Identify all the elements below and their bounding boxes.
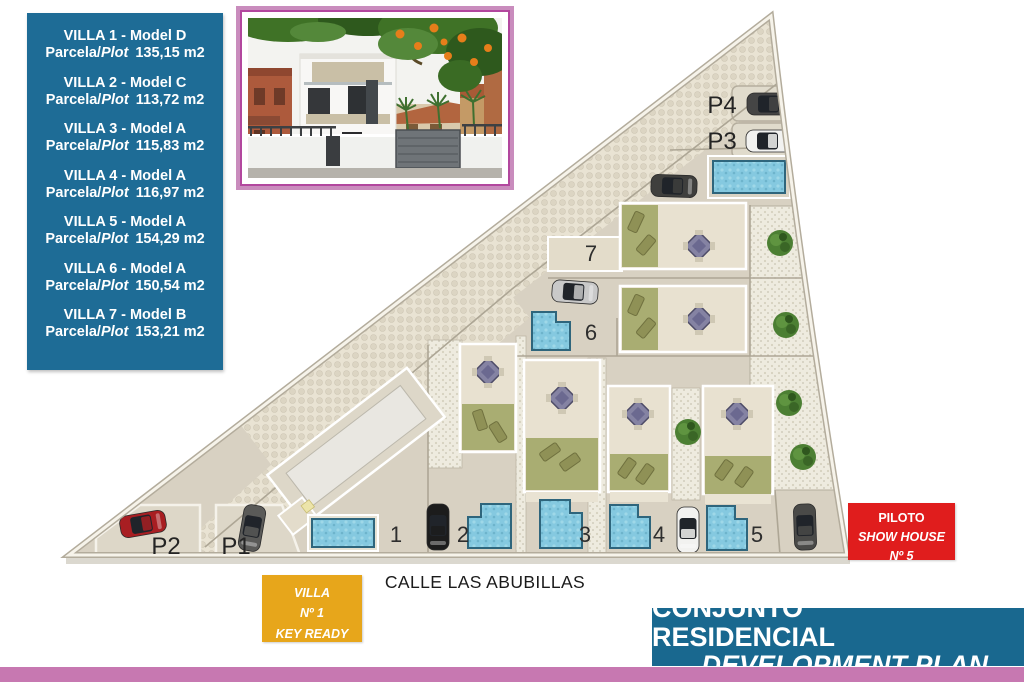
page-root: VILLA 1 - Model D Parcela/Plot135,15 m2 … xyxy=(0,0,1024,682)
tree-icon xyxy=(675,419,701,445)
plot-label-1: 1 xyxy=(390,522,402,547)
parking-label-p3: P3 xyxy=(707,128,736,155)
plot-label-7: 7 xyxy=(585,241,597,266)
pool-villa-7 xyxy=(713,161,785,193)
parking-label-p2: P2 xyxy=(151,533,180,560)
tree-icon xyxy=(790,444,816,470)
tree-icon xyxy=(776,390,802,416)
car-p4 xyxy=(747,93,793,115)
banner-title: CONJUNTO RESIDENCIAL xyxy=(652,594,988,651)
tree-icon xyxy=(767,230,793,256)
car-top xyxy=(651,174,698,198)
street-label: CALLE LAS ABUBILLAS xyxy=(370,572,600,593)
plot-label-5: 5 xyxy=(751,522,763,547)
car-villa-5 xyxy=(793,504,817,551)
car-villa-2 xyxy=(427,504,449,550)
show-house-badge: PILOTO SHOW HOUSE Nº 5 xyxy=(848,503,955,560)
plot-label-4: 4 xyxy=(653,522,665,547)
parking-label-p4: P4 xyxy=(707,92,736,119)
pool-villa-1 xyxy=(312,519,374,547)
plot-label-6: 6 xyxy=(585,320,597,345)
dev-plan-banner: CONJUNTO RESIDENCIAL DEVELOPMENT PLAN xyxy=(652,608,1024,666)
key-ready-badge: VILLA Nº 1 KEY READY xyxy=(262,575,362,642)
badge-line: SHOW HOUSE xyxy=(848,528,955,547)
car-villa-4 xyxy=(677,507,699,553)
badge-line: KEY READY xyxy=(262,624,362,644)
pink-footer-strip xyxy=(0,667,1024,682)
badge-line: Nº 1 xyxy=(262,603,362,623)
plot-label-3: 3 xyxy=(579,522,591,547)
badge-line: Nº 5 xyxy=(848,547,955,566)
plot-label-2: 2 xyxy=(457,522,469,547)
tree-icon xyxy=(773,312,799,338)
lawn-villa-2 xyxy=(462,404,514,450)
badge-line: VILLA xyxy=(262,583,362,603)
parking-label-p1: P1 xyxy=(221,533,250,560)
car-middle xyxy=(551,279,598,304)
plot-villa-2 xyxy=(460,344,516,548)
badge-line: PILOTO xyxy=(848,509,955,528)
